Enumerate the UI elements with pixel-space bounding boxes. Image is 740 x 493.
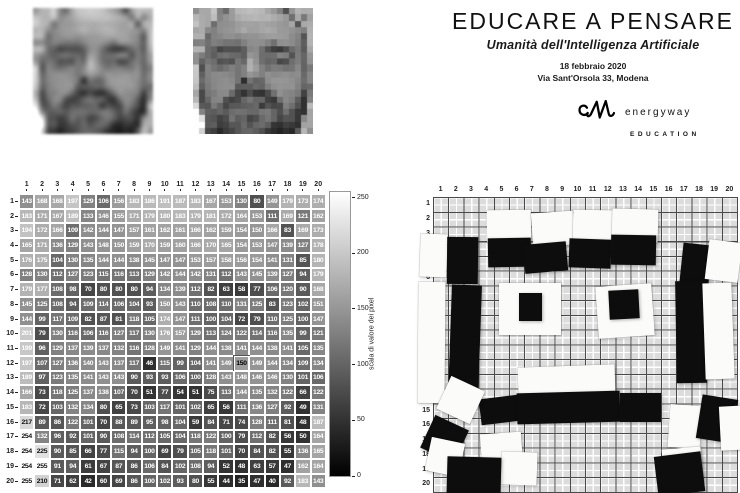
matrix-cell: 118 [50,385,65,400]
matrix-cell: 166 [265,223,280,238]
matrix-cell: 104 [50,253,65,268]
matrix-cell: 142 [188,268,203,283]
matrix-cell: 147 [172,312,187,327]
matrix-col-label: 18 [280,180,295,194]
matrix-cell: 150 [234,356,249,371]
matrix-cell: 104 [126,297,141,312]
black-paper-tile [611,235,656,265]
matrix-row-label: 19 [6,459,19,474]
matrix-cell: 131 [203,268,218,283]
matrix-cell: 144 [172,268,187,283]
board-col-label: 14 [631,186,646,193]
black-paper-tile [519,293,542,321]
board-col-label: 10 [570,186,585,193]
matrix-cell: 99 [34,312,49,327]
matrix-cell: 149 [265,194,280,209]
matrix-cell: 80 [111,282,126,297]
matrix-cell: 102 [157,474,172,489]
matrix-cell: 96 [50,430,65,445]
matrix-cell: 187 [311,415,326,430]
matrix-cell: 99 [172,356,187,371]
pixel-value-heatmap: 1234567891011121314151617181920114316816… [6,180,326,488]
matrix-cell: 129 [50,341,65,356]
black-paper-tile [479,395,521,425]
board-row-label: 2 [419,215,430,222]
matrix-cell: 183 [126,194,141,209]
matrix-cell: 94 [65,297,80,312]
matrix-cell: 130 [65,253,80,268]
matrix-cell: 106 [80,326,95,341]
matrix-row-label: 1 [6,194,19,209]
matrix-cell: 157 [203,253,218,268]
matrix-cell: 128 [203,371,218,386]
matrix-cell: 217 [19,415,34,430]
matrix-cell: 115 [157,356,172,371]
matrix-cell: 172 [34,223,49,238]
matrix-cell: 87 [96,312,111,327]
matrix-cell: 85 [295,253,310,268]
matrix-cell: 183 [19,209,34,224]
matrix-cell: 66 [80,444,95,459]
matrix-cell: 106 [172,371,187,386]
matrix-cell: 101 [80,430,95,445]
matrix-row-label: 16 [6,415,19,430]
matrix-row-label: 2 [6,209,19,224]
matrix-cell: 67 [96,459,111,474]
title-block: EDUCARE A PENSARE Umanità dell'Intellige… [450,8,736,138]
matrix-cell: 162 [295,459,310,474]
matrix-cell: 122 [311,385,326,400]
matrix-cell: 110 [265,312,280,327]
matrix-cell: 147 [111,223,126,238]
matrix-cell: 254 [19,459,34,474]
matrix-cell: 189 [19,371,34,386]
matrix-cell: 102 [172,459,187,474]
matrix-cell: 35 [234,474,249,489]
matrix-cell: 84 [249,444,264,459]
matrix-cell: 46 [142,356,157,371]
colorbar-axis-label: scala di valore dei pixel [366,192,378,476]
matrix-cell: 194 [19,223,34,238]
matrix-cell: 129 [142,268,157,283]
black-paper-tile [654,452,706,493]
matrix-cell: 161 [142,223,157,238]
matrix-cell: 108 [111,430,126,445]
matrix-cell: 108 [203,297,218,312]
matrix-cell: 77 [249,282,264,297]
matrix-cell: 143 [19,194,34,209]
matrix-cell: 111 [234,400,249,415]
matrix-cell: 143 [96,371,111,386]
matrix-cell: 117 [157,400,172,415]
white-paper-tile [704,239,740,283]
matrix-cell: 145 [249,268,264,283]
matrix-cell: 135 [249,385,264,400]
matrix-cell: 70 [126,385,141,400]
matrix-cell: 183 [188,194,203,209]
board-col-label: 16 [661,186,676,193]
matrix-cell: 104 [188,356,203,371]
matrix-col-label: 20 [311,180,326,194]
matrix-cell: 103 [142,400,157,415]
matrix-cell: 154 [249,253,264,268]
matrix-cell: 82 [203,282,218,297]
matrix-cell: 142 [80,223,95,238]
matrix-row-label: 3 [6,223,19,238]
matrix-cell: 98 [65,282,80,297]
matrix-col-label: 14 [218,180,233,194]
matrix-cell: 73 [126,400,141,415]
matrix-cell: 79 [234,430,249,445]
matrix-cell: 122 [280,385,295,400]
matrix-cell: 210 [34,474,49,489]
matrix-cell: 59 [188,415,203,430]
board-col-label: 2 [448,186,463,193]
matrix-cell: 179 [188,209,203,224]
board-col-label: 12 [600,186,615,193]
matrix-cell: 171 [34,238,49,253]
matrix-cell: 90 [126,371,141,386]
matrix-cell: 157 [126,223,141,238]
matrix-cell: 173 [311,223,326,238]
matrix-cell: 121 [295,209,310,224]
matrix-cell: 77 [157,385,172,400]
matrix-cell: 137 [80,385,95,400]
matrix-cell: 49 [295,400,310,415]
matrix-cell: 77 [96,444,111,459]
matrix-row-label: 20 [6,474,19,489]
matrix-cell: 125 [34,297,49,312]
matrix-cell: 109 [65,312,80,327]
matrix-cell: 149 [218,356,233,371]
matrix-cell: 111 [188,312,203,327]
matrix-cell: 146 [265,371,280,386]
matrix-cell: 72 [34,400,49,415]
matrix-cell: 66 [295,385,310,400]
matrix-cell: 112 [142,430,157,445]
board-col-label: 4 [479,186,494,193]
matrix-cell: 144 [19,312,34,327]
matrix-cell: 136 [50,238,65,253]
white-paper-tile [500,452,538,486]
matrix-cell: 48 [295,415,310,430]
matrix-cell: 93 [142,297,157,312]
matrix-cell: 131 [280,253,295,268]
matrix-cell: 134 [311,356,326,371]
matrix-cell: 104 [172,430,187,445]
matrix-cell: 134 [157,282,172,297]
matrix-cell: 107 [111,385,126,400]
matrix-row-label: 15 [6,400,19,415]
matrix-cell: 79 [172,444,187,459]
board-col-label: 19 [707,186,722,193]
matrix-cell: 150 [111,238,126,253]
matrix-cell: 130 [50,326,65,341]
matrix-col-label: 12 [188,180,203,194]
matrix-cell: 132 [65,400,80,415]
matrix-cell: 179 [311,268,326,283]
matrix-cell: 106 [265,282,280,297]
pixelated-face-photo [193,8,313,134]
matrix-cell: 70 [80,282,95,297]
matrix-cell: 174 [157,312,172,327]
matrix-cell: 181 [203,209,218,224]
matrix-row-label: 9 [6,312,19,327]
matrix-row-label: 14 [6,385,19,400]
matrix-cell: 135 [280,326,295,341]
matrix-cell: 116 [96,326,111,341]
matrix-cell: 69 [157,444,172,459]
matrix-cell: 147 [157,253,172,268]
matrix-cell: 144 [203,341,218,356]
matrix-cell: 122 [203,430,218,445]
matrix-cell: 108 [50,282,65,297]
matrix-cell: 177 [34,282,49,297]
matrix-cell: 138 [218,341,233,356]
brand-name: energyway [625,107,691,118]
matrix-cell: 81 [111,312,126,327]
matrix-cell: 127 [265,400,280,415]
matrix-cell: 143 [311,474,326,489]
matrix-cell: 143 [80,238,95,253]
matrix-cell: 144 [111,253,126,268]
matrix-cell: 115 [111,444,126,459]
matrix-cell: 100 [218,430,233,445]
event-address: Via Sant'Orsola 33, Modena [450,73,736,83]
matrix-cell: 255 [34,459,49,474]
matrix-cell: 147 [311,312,326,327]
matrix-cell: 94 [203,459,218,474]
matrix-cell: 149 [157,341,172,356]
matrix-cell: 199 [19,341,34,356]
matrix-cell: 65 [111,400,126,415]
matrix-cell: 160 [172,238,187,253]
matrix-cell: 65 [203,400,218,415]
matrix-cell: 105 [157,430,172,445]
matrix-cell: 141 [265,253,280,268]
matrix-cell: 143 [172,297,187,312]
matrix-corner [6,180,19,194]
matrix-cell: 85 [65,444,80,459]
matrix-cell: 166 [19,385,34,400]
matrix-cell: 142 [157,268,172,283]
matrix-cell: 136 [65,356,80,371]
board-col-label: 15 [646,186,661,193]
matrix-cell: 88 [111,415,126,430]
matrix-cell: 129 [65,238,80,253]
matrix-cell: 148 [234,371,249,386]
matrix-cell: 165 [19,238,34,253]
matrix-cell: 129 [188,341,203,356]
matrix-cell: 183 [295,474,310,489]
matrix-cell: 114 [96,297,111,312]
matrix-col-label: 11 [172,180,187,194]
matrix-cell: 174 [311,194,326,209]
matrix-col-label: 7 [111,180,126,194]
matrix-cell: 187 [172,194,187,209]
board-col-label: 7 [524,186,539,193]
matrix-cell: 86 [126,474,141,489]
matrix-row-label: 8 [6,297,19,312]
matrix-cell: 107 [34,356,49,371]
matrix-cell: 116 [111,268,126,283]
matrix-cell: 62 [65,474,80,489]
matrix-cell: 136 [295,444,310,459]
matrix-cell: 55 [203,474,218,489]
matrix-cell: 144 [96,253,111,268]
matrix-cell: 109 [80,297,95,312]
matrix-cell: 151 [311,297,326,312]
matrix-cell: 141 [234,341,249,356]
matrix-cell: 170 [142,238,157,253]
matrix-cell: 143 [111,371,126,386]
matrix-cell: 158 [218,253,233,268]
matrix-col-label: 16 [249,180,264,194]
matrix-cell: 183 [19,400,34,415]
matrix-col-label: 6 [96,180,111,194]
matrix-cell: 170 [203,238,218,253]
black-paper-tile [447,456,502,493]
matrix-row-label: 13 [6,371,19,386]
board-col-label: 6 [509,186,524,193]
matrix-cell: 96 [34,341,49,356]
white-paper-tile [487,209,531,241]
matrix-cell: 94 [295,268,310,283]
matrix-row-label: 18 [6,444,19,459]
matrix-cell: 114 [126,430,141,445]
black-paper-tile [517,390,621,424]
black-paper-tile [609,289,640,319]
matrix-cell: 139 [80,341,95,356]
original-face-photo [33,8,153,134]
matrix-cell: 138 [265,341,280,356]
matrix-cell: 164 [311,459,326,474]
matrix-cell: 83 [280,223,295,238]
handout-page: EDUCARE A PENSARE Umanità dell'Intellige… [0,0,740,493]
matrix-cell: 94 [65,459,80,474]
matrix-cell: 153 [249,209,264,224]
matrix-cell: 144 [249,341,264,356]
matrix-cell: 105 [142,312,157,327]
matrix-cell: 225 [34,444,49,459]
matrix-cell: 154 [234,238,249,253]
matrix-cell: 159 [218,223,233,238]
matrix-cell: 189 [65,209,80,224]
black-paper-tile [523,241,569,273]
matrix-cell: 147 [265,238,280,253]
matrix-cell: 48 [234,459,249,474]
matrix-cell: 254 [19,430,34,445]
matrix-cell: 112 [50,268,65,283]
matrix-col-label: 2 [34,180,49,194]
colorbar-tick: 50 [352,416,365,424]
matrix-cell: 127 [65,268,80,283]
matrix-cell: 100 [188,371,203,386]
matrix-cell: 138 [96,385,111,400]
board-col-label: 9 [555,186,570,193]
board-col-label: 3 [463,186,478,193]
matrix-cell: 71 [218,415,233,430]
event-date: 18 febbraio 2020 [450,61,736,71]
matrix-cell: 93 [142,371,157,386]
matrix-cell: 125 [65,385,80,400]
matrix-cell: 92 [280,474,295,489]
matrix-cell: 156 [111,194,126,209]
matrix-cell: 130 [280,371,295,386]
matrix-cell: 81 [280,415,295,430]
matrix-cell: 117 [50,312,65,327]
matrix-cell: 95 [142,415,157,430]
matrix-cell: 105 [188,444,203,459]
black-paper-tile [620,393,661,422]
matrix-cell: 141 [203,356,218,371]
matrix-cell: 109 [295,356,310,371]
matrix-cell: 124 [218,326,233,341]
matrix-cell: 101 [218,444,233,459]
matrix-cell: 156 [234,253,249,268]
matrix-cell: 176 [19,253,34,268]
matrix-cell: 197 [19,356,34,371]
matrix-cell: 125 [280,312,295,327]
matrix-cell: 106 [311,371,326,386]
matrix-cell: 153 [218,194,233,209]
white-paper-tile [718,405,740,450]
matrix-cell: 135 [311,341,326,356]
page-title: EDUCARE A PENSARE [450,8,736,35]
matrix-col-label: 17 [265,180,280,194]
matrix-cell: 100 [295,312,310,327]
matrix-cell: 139 [265,268,280,283]
matrix-cell: 168 [34,194,49,209]
matrix-col-label: 4 [65,180,80,194]
matrix-col-label: 8 [126,180,141,194]
matrix-col-label: 5 [80,180,95,194]
matrix-col-label: 9 [142,180,157,194]
matrix-cell: 130 [34,268,49,283]
matrix-cell: 114 [249,326,264,341]
matrix-cell: 130 [142,326,157,341]
brand-division: EDUCATION [630,131,728,138]
board-col-label: 18 [691,186,706,193]
matrix-cell: 71 [50,474,65,489]
matrix-cell: 147 [172,253,187,268]
matrix-cell: 140 [80,356,95,371]
matrix-cell: 137 [111,356,126,371]
matrix-cell: 105 [295,341,310,356]
matrix-cell: 179 [19,282,34,297]
matrix-cell: 110 [188,297,203,312]
matrix-cell: 54 [172,385,187,400]
matrix-row-label: 12 [6,356,19,371]
matrix-col-label: 3 [50,180,65,194]
matrix-cell: 129 [80,194,95,209]
matrix-cell: 173 [295,194,310,209]
matrix-cell: 113 [203,326,218,341]
matrix-cell: 159 [126,238,141,253]
matrix-row-label: 6 [6,268,19,283]
matrix-cell: 93 [172,474,187,489]
matrix-cell: 56 [280,430,295,445]
matrix-cell: 144 [234,385,249,400]
matrix-cell: 103 [50,400,65,415]
matrix-cell: 123 [50,371,65,386]
matrix-cell: 180 [157,209,172,224]
matrix-cell: 108 [188,459,203,474]
matrix-cell: 166 [188,238,203,253]
board-col-label: 8 [539,186,554,193]
matrix-cell: 179 [280,194,295,209]
board-row-label: 1 [419,200,430,207]
